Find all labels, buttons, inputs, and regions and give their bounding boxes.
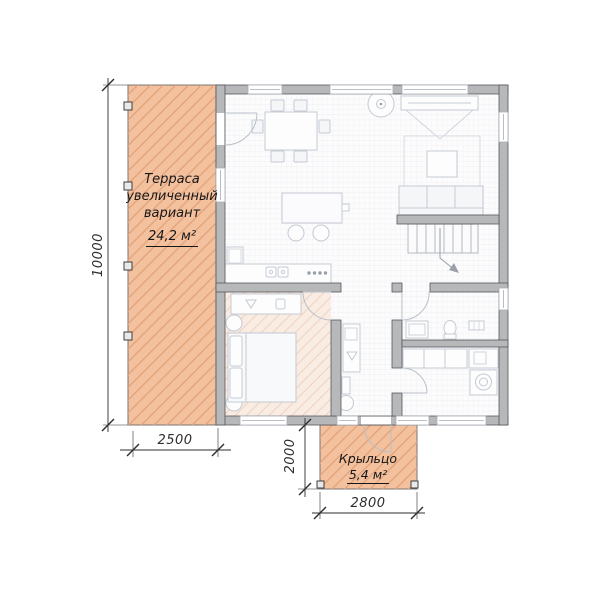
- window: [248, 85, 282, 94]
- bedside-stool-icon: [226, 315, 242, 331]
- window: [240, 416, 287, 425]
- kitchen-island-icon: [282, 193, 349, 223]
- window: [437, 416, 486, 425]
- floor-plan-canvas: Терраса увеличенный вариант 24,2 м² Крыл…: [0, 0, 600, 600]
- ceiling-fan-icon: [368, 91, 394, 117]
- porch-label-name: Крыльцо: [318, 451, 418, 466]
- dim-value-height-total: 10000: [91, 225, 107, 285]
- sofa-icon: [399, 186, 483, 215]
- washing-machine-icon: [470, 370, 497, 395]
- sofa-partition-wall: [397, 215, 499, 224]
- window: [402, 85, 468, 94]
- terrace: [124, 85, 216, 425]
- porch-label: Крыльцо 5,4 м²: [318, 451, 418, 484]
- window: [396, 416, 429, 425]
- vanity-icon: [231, 294, 301, 314]
- porch-area-value: 5,4 м²: [347, 467, 389, 484]
- kitchen-counter-icon: [225, 264, 331, 285]
- terrace-label-line2: увеличенный: [126, 188, 218, 205]
- floor-plan-drawing: [0, 0, 600, 600]
- terrace-label-line1: Терраса: [126, 171, 218, 188]
- coffee-table-icon: [427, 151, 457, 177]
- toilet-icon: [444, 321, 456, 340]
- dim-value-porch-width: 2800: [338, 496, 398, 512]
- towel-rail-icon: [469, 321, 484, 330]
- window: [499, 288, 508, 310]
- dim-value-terrace-width: 2500: [145, 433, 205, 449]
- dim-value-porch-depth: 2000: [283, 426, 299, 486]
- bed-icon: [228, 333, 296, 402]
- washbasin-icon: [406, 321, 428, 338]
- laundry-counter-icon: [403, 349, 467, 368]
- terrace-label-line3: вариант: [126, 205, 218, 222]
- window: [330, 85, 393, 94]
- terrace-area-value: 24,2 м²: [146, 228, 198, 247]
- utility-sink-icon: [469, 349, 498, 368]
- window: [499, 112, 508, 142]
- terrace-label: Терраса увеличенный вариант 24,2 м²: [126, 171, 218, 247]
- window: [337, 416, 358, 425]
